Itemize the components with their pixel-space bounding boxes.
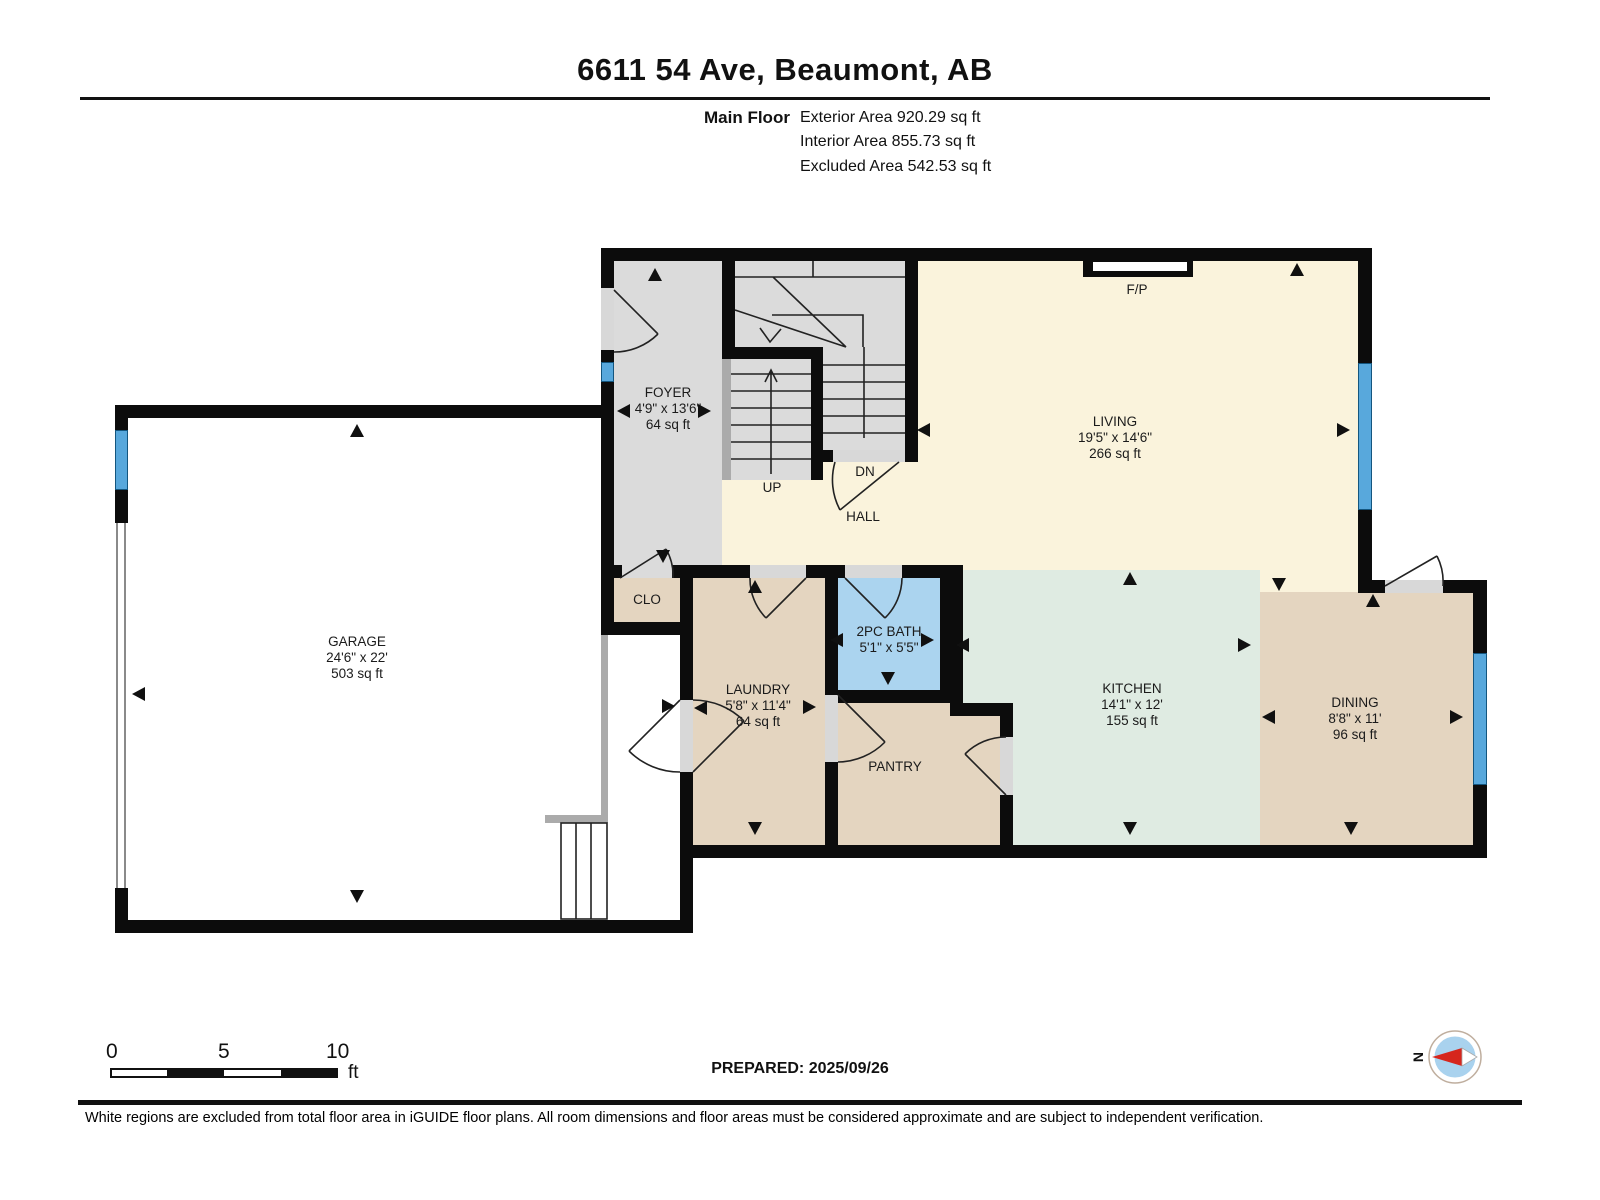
- room-area: 266 sq ft: [1078, 446, 1152, 462]
- pantry-kitchen-door-opening: [1000, 737, 1013, 795]
- dimension-arrow-icon: [1272, 578, 1286, 591]
- room-label-kitchen: KITCHEN 14'1" x 12' 155 sq ft: [1101, 681, 1163, 729]
- dimension-arrow-icon: [1123, 572, 1137, 585]
- compass-north-label: N: [1410, 1052, 1426, 1062]
- room-label-bath: 2PC BATH 5'1" x 5'5": [856, 624, 921, 656]
- wall-segment: [601, 622, 693, 635]
- wall-segment: [823, 450, 833, 462]
- foyer-window: [601, 362, 614, 382]
- compass-needle-south-icon: [1462, 1048, 1477, 1066]
- room-label-foyer: FOYER 4'9" x 13'6" 64 sq ft: [635, 385, 702, 433]
- stair-down-door-threshold: [833, 450, 905, 462]
- room-label-pantry: PANTRY: [868, 759, 922, 775]
- wall-segment: [722, 261, 735, 347]
- closet-door-opening: [622, 565, 672, 578]
- scale-unit: ft: [348, 1062, 359, 1084]
- floor-plan: FOYER 4'9" x 13'6" 64 sq ft LIVING 19'5"…: [0, 0, 1600, 1000]
- fireplace-inset: [1093, 262, 1187, 271]
- dimension-arrow-icon: [748, 580, 762, 593]
- scale-segment: [110, 1068, 167, 1078]
- scale-segment: [167, 1068, 224, 1078]
- room-dims: 8'8" x 11': [1328, 711, 1381, 727]
- dining-patio-door-threshold: [1385, 580, 1443, 593]
- room-name: 2PC BATH: [856, 624, 921, 640]
- room-label-closet: CLO: [633, 592, 661, 608]
- dimension-arrow-icon: [694, 701, 707, 715]
- wall-segment: [115, 920, 693, 933]
- compass: N: [1390, 1020, 1510, 1100]
- dimension-arrow-icon: [917, 423, 930, 437]
- room-name: KITCHEN: [1101, 681, 1163, 697]
- dimension-arrow-icon: [881, 672, 895, 685]
- compass-needle-north-icon: [1432, 1048, 1462, 1066]
- entry-door-threshold: [601, 288, 614, 350]
- dimension-arrow-icon: [350, 890, 364, 903]
- dimension-arrow-icon: [132, 687, 145, 701]
- room-name: LIVING: [1078, 414, 1152, 430]
- dimension-arrow-icon: [662, 699, 675, 713]
- living-window: [1358, 363, 1372, 510]
- steps-railing-cap: [545, 815, 608, 823]
- dimension-arrow-icon: [1262, 710, 1275, 724]
- scale-tick-5: 5: [218, 1040, 230, 1064]
- scale-segment: [281, 1068, 338, 1078]
- compass-face: [1435, 1037, 1476, 1078]
- dimension-arrow-icon: [617, 404, 630, 418]
- stairs-up: [731, 357, 811, 480]
- room-area: 64 sq ft: [725, 714, 791, 730]
- wall-segment: [680, 845, 1487, 858]
- room-label-living: LIVING 19'5" x 14'6" 266 sq ft: [1078, 414, 1152, 462]
- prepared-date: PREPARED: 2025/09/26: [600, 1060, 1000, 1078]
- laundry-door-opening: [750, 565, 806, 578]
- dimension-arrow-icon: [1344, 822, 1358, 835]
- disclaimer-text: White regions are excluded from total fl…: [85, 1110, 1515, 1126]
- room-name: GARAGE: [326, 634, 388, 650]
- stair-railing: [722, 357, 731, 480]
- room-area: 64 sq ft: [635, 417, 702, 433]
- scale-segment: [224, 1068, 281, 1078]
- dimension-arrow-icon: [1337, 423, 1350, 437]
- wall-segment: [811, 347, 823, 480]
- fireplace-label: F/P: [1126, 282, 1147, 298]
- scale-tick-0: 0: [106, 1040, 118, 1064]
- dimension-arrow-icon: [1366, 594, 1380, 607]
- dimension-arrow-icon: [1123, 822, 1137, 835]
- dimension-arrow-icon: [1290, 263, 1304, 276]
- room-name: FOYER: [635, 385, 702, 401]
- dimension-arrow-icon: [648, 268, 662, 281]
- room-dims: 19'5" x 14'6": [1078, 430, 1152, 446]
- room-area: 96 sq ft: [1328, 727, 1381, 743]
- dimension-arrow-icon: [698, 404, 711, 418]
- bath-door-opening: [845, 565, 902, 578]
- room-label-laundry: LAUNDRY 5'8" x 11'4" 64 sq ft: [725, 682, 791, 730]
- room-label-dining: DINING 8'8" x 11' 96 sq ft: [1328, 695, 1381, 743]
- compass-ring: [1429, 1031, 1481, 1083]
- room-dims: 14'1" x 12': [1101, 697, 1163, 713]
- dimension-arrow-icon: [956, 638, 969, 652]
- stairs-down: [823, 347, 905, 450]
- dimension-arrow-icon: [830, 633, 843, 647]
- garage-laundry-door-opening: [680, 700, 693, 772]
- stair-label-dn: DN: [855, 464, 875, 480]
- wall-segment: [722, 347, 823, 359]
- floorplan-page: 6611 54 Ave, Beaumont, AB Main Floor Ext…: [0, 0, 1600, 1200]
- garage-overhead-door: [116, 523, 126, 888]
- garage-window: [115, 430, 128, 490]
- room-dims: 5'1" x 5'5": [856, 640, 921, 656]
- dimension-arrow-icon: [1238, 638, 1251, 652]
- wall-segment: [950, 703, 1013, 716]
- dimension-arrow-icon: [748, 822, 762, 835]
- room-dims: 24'6" x 22': [326, 650, 388, 666]
- dimension-arrow-icon: [1450, 710, 1463, 724]
- wall-segment: [601, 248, 1372, 261]
- room-name: LAUNDRY: [725, 682, 791, 698]
- stair-winder: [735, 261, 905, 347]
- dimension-arrow-icon: [350, 424, 364, 437]
- scale-bar: 0 5 10 ft: [0, 1000, 500, 1100]
- room-garage: [128, 418, 680, 920]
- room-area: 503 sq ft: [326, 666, 388, 682]
- wall-segment: [940, 565, 963, 703]
- room-dims: 5'8" x 11'4": [725, 698, 791, 714]
- footer-divider: [78, 1100, 1522, 1105]
- dining-window: [1473, 653, 1487, 785]
- wall-segment: [115, 405, 614, 418]
- laundry-pantry-door-opening: [825, 695, 838, 762]
- room-name: DINING: [1328, 695, 1381, 711]
- room-label-hall: HALL: [846, 509, 880, 525]
- room-area: 155 sq ft: [1101, 713, 1163, 729]
- steps-railing: [601, 635, 608, 815]
- dimension-arrow-icon: [656, 550, 670, 563]
- dimension-arrow-icon: [803, 700, 816, 714]
- room-label-garage: GARAGE 24'6" x 22' 503 sq ft: [326, 634, 388, 682]
- scale-tick-10: 10: [326, 1040, 349, 1064]
- room-dims: 4'9" x 13'6": [635, 401, 702, 417]
- dimension-arrow-icon: [921, 633, 934, 647]
- wall-segment: [825, 690, 963, 703]
- stair-label-up: UP: [763, 480, 782, 496]
